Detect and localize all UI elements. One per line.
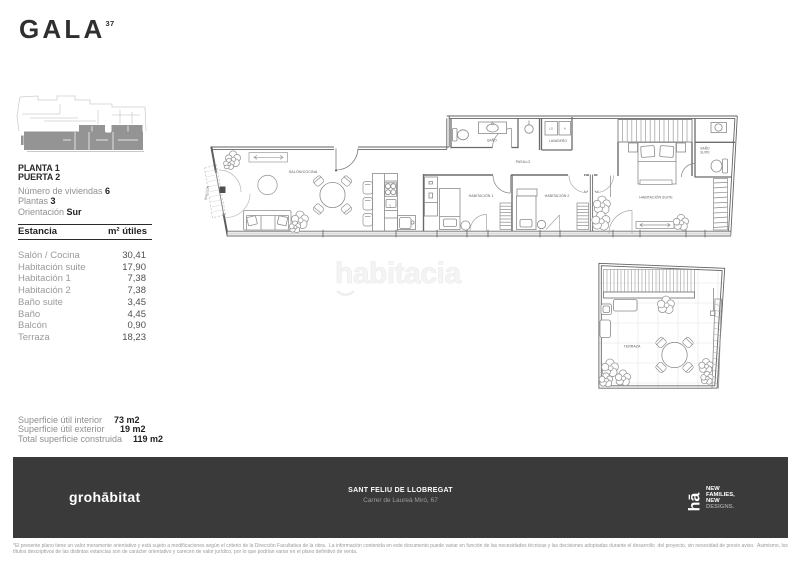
svg-text:LAVADERO: LAVADERO [549, 139, 567, 143]
svg-text:HABITACIÓN 2: HABITACIÓN 2 [545, 193, 570, 198]
svg-text:SALÓN/COCINA: SALÓN/COCINA [289, 169, 318, 174]
svg-text:LS: LS [549, 127, 553, 131]
svg-text:SUITE: SUITE [700, 151, 709, 155]
svg-text:TERRAZA: TERRAZA [624, 345, 641, 349]
svg-text:A: A [564, 127, 566, 131]
svg-text:PASILLO: PASILLO [516, 160, 531, 164]
svg-text:BAÑO: BAÑO [487, 138, 497, 143]
svg-text:LV: LV [388, 204, 392, 207]
svg-text:HABITACIÓN SUITE: HABITACIÓN SUITE [639, 195, 673, 200]
svg-text:HABITACIÓN 1: HABITACIÓN 1 [469, 193, 494, 198]
